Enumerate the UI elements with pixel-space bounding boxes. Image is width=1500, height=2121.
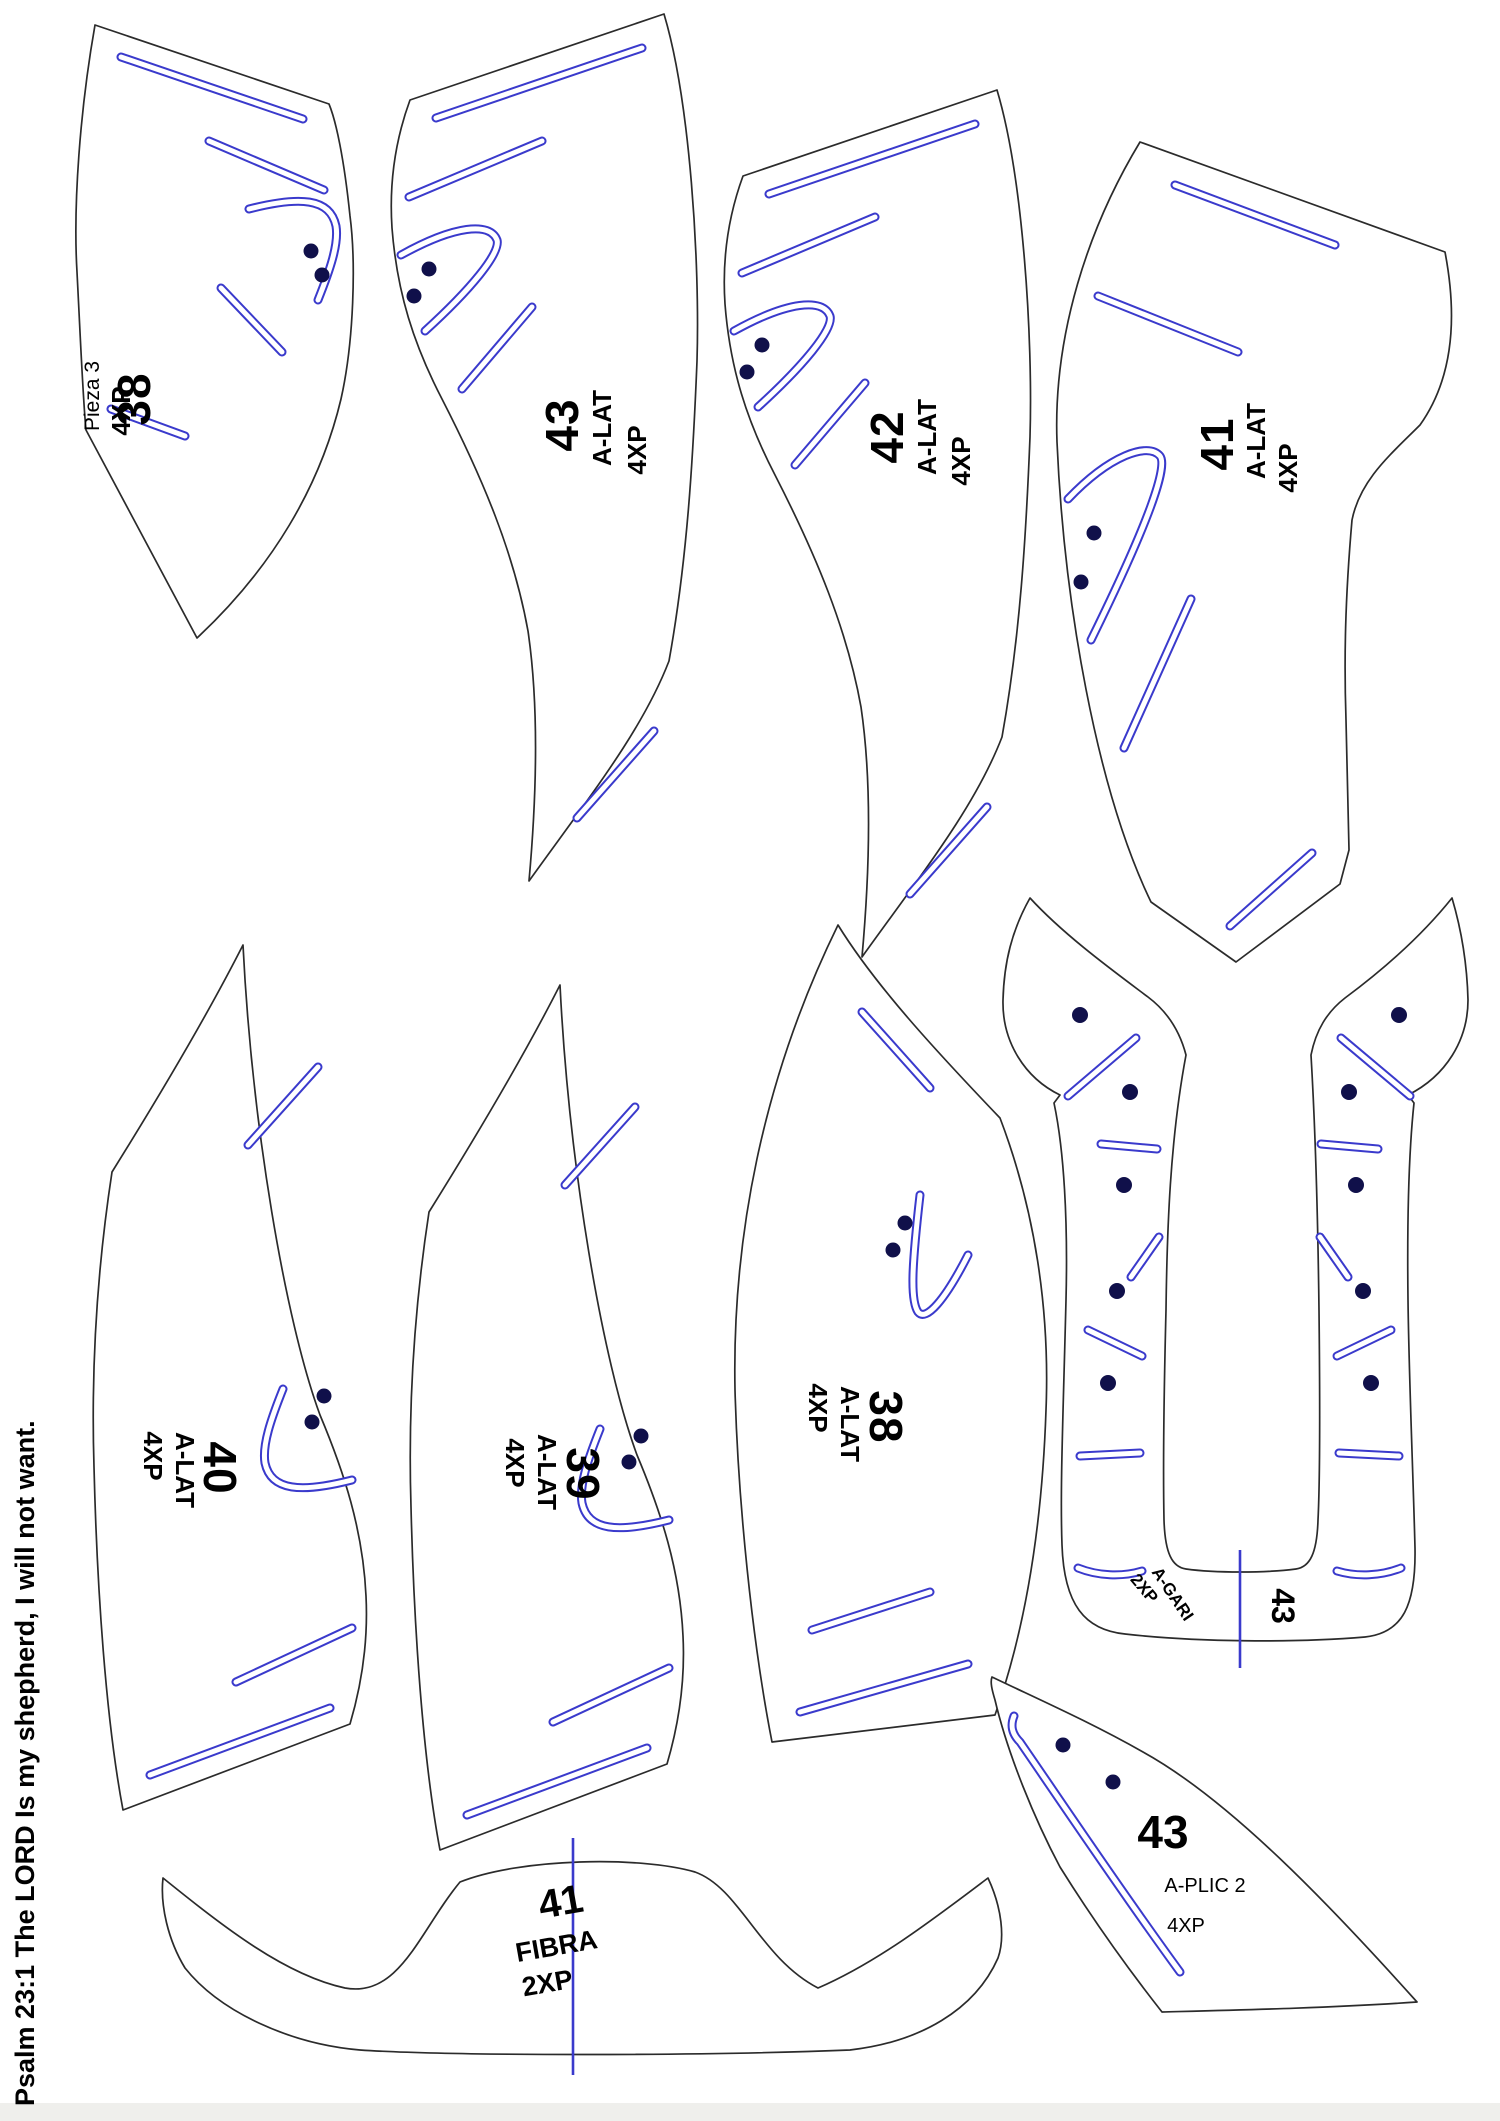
piece-qty: 4XP — [622, 425, 652, 474]
piece-type: A-LAT — [532, 1434, 562, 1510]
piece-qty: 4XP — [1167, 1915, 1205, 1937]
pattern-canvas: Pieza 3 4XP 38 43 A-LAT 4XP 42 A-LAT 4XP — [0, 0, 1500, 2121]
pattern-piece-alat38: 38 A-LAT 4XP — [735, 925, 1047, 1742]
piece-qty: 4XP — [500, 1438, 530, 1487]
piece-type: A-LAT — [1241, 403, 1271, 479]
piece-size: 40 — [194, 1441, 246, 1494]
pattern-piece-aplic: 43 A-PLIC 2 4XP — [991, 1677, 1417, 2012]
piece-size: 41 — [1191, 417, 1243, 470]
piece-size: 43 — [1137, 1806, 1188, 1858]
piece-qty: 4XP — [138, 1431, 168, 1480]
piece-qty: 4XP — [946, 436, 976, 485]
piece-type: A-LAT — [835, 1386, 865, 1462]
piece-size: 41 — [535, 1877, 586, 1928]
pattern-piece-alat42: 42 A-LAT 4XP — [724, 90, 1030, 957]
pattern-piece-fibra: 41 FIBRA 2XP — [162, 1838, 1001, 2075]
piece-qty: 4XP — [1273, 443, 1303, 492]
piece-type: A-LAT — [587, 390, 617, 466]
piece-size: 39 — [557, 1447, 609, 1500]
piece-type: A-LAT — [912, 399, 942, 475]
piece-type: A-LAT — [170, 1432, 200, 1508]
piece-size: 42 — [861, 410, 913, 463]
piece-size: 38 — [108, 372, 160, 425]
pattern-piece-agari: A-GARI 2XP 43 — [1003, 898, 1468, 1668]
pattern-piece-alat41: 41 A-LAT 4XP — [1057, 142, 1452, 962]
pattern-piece-alat39: 39 A-LAT 4XP — [410, 985, 683, 1850]
piece-size: 43 — [1265, 1588, 1301, 1624]
piece-size: 43 — [536, 398, 588, 451]
piece-name: A-PLIC 2 — [1164, 1875, 1245, 1897]
piece-qty: 4XP — [803, 1383, 833, 1432]
footer-verse: Psalm 23:1 The LORD Is my shepherd, I wi… — [10, 1420, 40, 2106]
pattern-piece-pieza3: Pieza 3 4XP 38 — [76, 25, 353, 638]
piece-name: Pieza 3 — [81, 361, 104, 431]
piece-size: 38 — [860, 1390, 912, 1443]
pattern-sheet: Pieza 3 4XP 38 43 A-LAT 4XP 42 A-LAT 4XP — [0, 0, 1500, 2121]
pattern-piece-alat43: 43 A-LAT 4XP — [391, 14, 697, 881]
pattern-piece-alat40: 40 A-LAT 4XP — [93, 945, 366, 1810]
page-bottom-band — [0, 2103, 1500, 2121]
